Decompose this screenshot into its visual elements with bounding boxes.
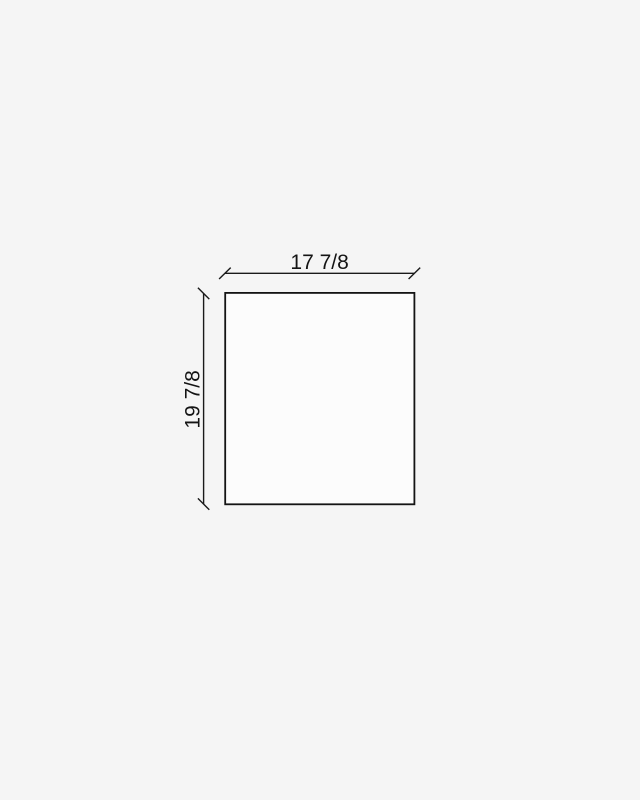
svg-text:19 7/8: 19 7/8	[182, 370, 205, 428]
svg-text:17 7/8: 17 7/8	[290, 251, 348, 274]
